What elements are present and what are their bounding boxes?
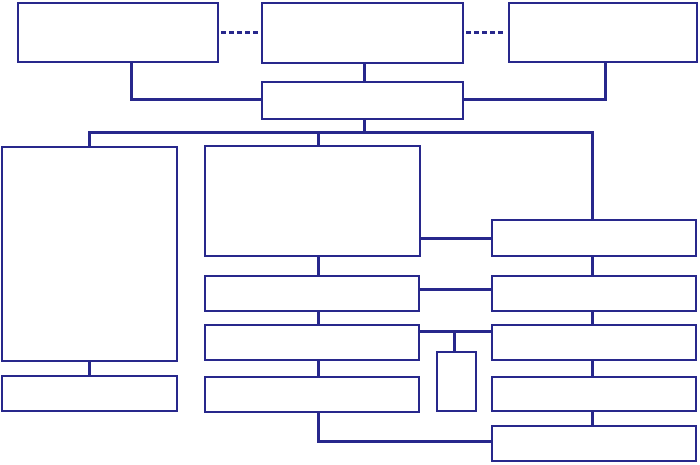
- dashed-link-right-dashed-connector: [466, 31, 506, 34]
- dashed-link-left-dashed-connector: [221, 31, 259, 34]
- topleft-drop-connector: [130, 63, 133, 101]
- center-box-3: [204, 324, 420, 361]
- small-vertical-box: [436, 351, 477, 412]
- top-center-box: [261, 2, 464, 64]
- center-link-1-connector: [317, 257, 320, 276]
- bottom-run-connector: [317, 440, 492, 443]
- bus-connector: [88, 131, 594, 134]
- right-link-4-connector: [591, 412, 594, 426]
- cross-link-2-connector: [420, 288, 491, 291]
- top-right-box: [508, 2, 698, 63]
- topleft-run-connector: [130, 98, 261, 101]
- center-large-box: [204, 145, 421, 257]
- right-link-1-connector: [591, 257, 594, 276]
- hub-box: [261, 81, 464, 120]
- bus-center-riser-connector: [317, 131, 320, 146]
- left-bottom-box: [1, 375, 178, 412]
- topright-drop-connector: [604, 63, 607, 101]
- cross-link-1-connector: [421, 237, 491, 240]
- center-link-3-connector: [317, 361, 320, 377]
- topright-run-connector: [464, 98, 607, 101]
- center-box-4: [204, 376, 420, 413]
- right-box-4: [491, 376, 697, 412]
- left-column-link-connector: [88, 362, 91, 376]
- right-box-1: [491, 219, 697, 257]
- right-box-3: [491, 324, 697, 361]
- bottom-drop-connector: [317, 413, 320, 443]
- left-tall-box: [1, 146, 178, 362]
- center-box-2: [204, 275, 420, 312]
- bus-left-riser-connector: [88, 131, 91, 147]
- bus-right-riser-connector: [591, 131, 594, 220]
- topcenter-drop-connector: [363, 64, 366, 82]
- diagram-canvas: [0, 0, 700, 465]
- right-link-3-connector: [591, 361, 594, 377]
- right-box-5: [491, 425, 697, 462]
- top-left-box: [17, 2, 219, 63]
- right-box-2: [491, 275, 697, 312]
- small-box-stem-connector: [453, 330, 456, 352]
